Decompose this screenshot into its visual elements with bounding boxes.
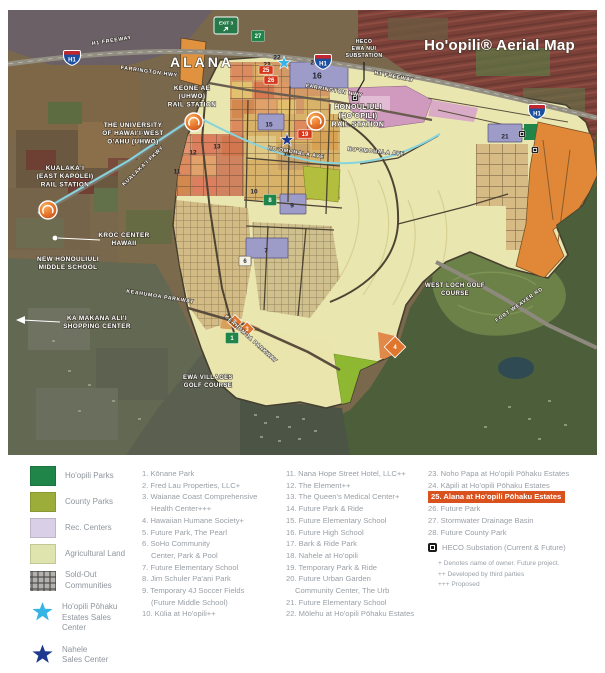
svg-text:NEW HONOULIULI: NEW HONOULIULI xyxy=(37,256,99,263)
legend-item-heco-substation: HECO Substation (Current & Future) xyxy=(428,542,602,554)
legend-item: 10. Kūlia at Ho'opili++ xyxy=(142,608,282,620)
svg-text:O'AHU (UHWO): O'AHU (UHWO) xyxy=(107,138,158,145)
legend-entry-label: Ho'opili Parks xyxy=(65,471,114,482)
hoopili-aerial-map-page: 27222324252616151913121118109821762314 H… xyxy=(0,0,605,673)
svg-text:H1: H1 xyxy=(319,62,327,68)
star-dark-icon xyxy=(32,645,53,665)
svg-text:19: 19 xyxy=(302,132,309,138)
legend-entry-label: Sold-OutCommunities xyxy=(65,570,112,591)
svg-text:RAIL STATION: RAIL STATION xyxy=(332,122,385,129)
legend-panel: Ho'opili ParksCounty ParksRec. CentersAg… xyxy=(0,458,605,673)
legend-item: 16. Future High School xyxy=(286,527,426,539)
svg-text:(HO'OPILI): (HO'OPILI) xyxy=(338,113,377,120)
legend-swatches: Ho'opili ParksCounty ParksRec. CentersAg… xyxy=(30,466,138,672)
parcel-marker-21: 21 xyxy=(501,133,509,140)
swatch-agricultural-land-icon xyxy=(30,544,56,564)
map-title: Ho'opili® Aerial Map xyxy=(424,37,575,54)
svg-text:12: 12 xyxy=(189,149,197,156)
svg-text:KROC CENTER: KROC CENTER xyxy=(98,232,149,239)
svg-text:(UHWO): (UHWO) xyxy=(179,93,206,100)
svg-text:15: 15 xyxy=(265,121,273,128)
parcel-marker-11: 11 xyxy=(174,168,181,175)
swatch-rec-centers-icon xyxy=(30,518,56,538)
parcel-marker-16: 16 xyxy=(312,70,322,80)
svg-text:RAIL STATION: RAIL STATION xyxy=(41,181,89,188)
legend-item: 14. Future Park & Ride xyxy=(286,503,426,515)
legend-item: 28. Future County Park xyxy=(428,527,602,539)
legend-item: Center, Park & Pool xyxy=(142,550,282,562)
legend-item: 22. Mōlehu at Ho'opili Pōhaku Estates xyxy=(286,608,426,620)
rail-station-icon xyxy=(185,113,203,131)
kroc-dot xyxy=(53,236,58,241)
legend-list-column-2: 11. Nana Hope Street Hotel, LLC++12. The… xyxy=(286,468,426,620)
svg-text:KUALAKA'I: KUALAKA'I xyxy=(46,165,85,172)
parcel-marker-27: 27 xyxy=(252,31,265,42)
legend-item: 26. Future Park xyxy=(428,503,602,515)
svg-text:COURSE: COURSE xyxy=(441,291,469,297)
svg-text:EWA VILLAGES: EWA VILLAGES xyxy=(183,375,233,381)
svg-text:H1: H1 xyxy=(533,112,541,118)
heco-substation-icon xyxy=(428,543,437,552)
exit-3-sign: EXIT 3 xyxy=(214,17,238,34)
legend-entry-star-dark: NaheleSales Center xyxy=(30,645,138,666)
parcel-marker-10: 10 xyxy=(250,188,258,195)
svg-text:SHOPPING CENTER: SHOPPING CENTER xyxy=(63,323,131,330)
legend-item: Community Center, The Urb xyxy=(286,585,426,597)
svg-text:13: 13 xyxy=(213,143,221,150)
legend-item: 9. Temporary 4J Soccer Fields xyxy=(142,585,282,597)
legend-item: 17. Bark & Ride Park xyxy=(286,538,426,550)
legend-entry-hoopili-parks: Ho'opili Parks xyxy=(30,466,138,486)
parcel-marker-1: 1 xyxy=(226,333,239,344)
svg-text:HAWAII: HAWAII xyxy=(111,240,136,247)
place-label: NEW HONOULIULIMIDDLE SCHOOL xyxy=(37,256,99,271)
legend-item: 27. Stormwater Drainage Basin xyxy=(428,515,602,527)
legend-entry-label: County Parks xyxy=(65,497,113,508)
legend-entry-agricultural-land: Agricultural Land xyxy=(30,544,138,564)
svg-text:GOLF COURSE: GOLF COURSE xyxy=(184,383,232,389)
legend-entry-rec-centers: Rec. Centers xyxy=(30,518,138,538)
swatch-hoopili-parks-icon xyxy=(30,466,56,486)
legend-notes: + Denotes name of owner. Future project.… xyxy=(428,559,602,591)
svg-text:26: 26 xyxy=(268,78,275,84)
aerial-map-canvas: 27222324252616151913121118109821762314 H… xyxy=(8,10,597,455)
place-label: KA MAKANA ALI'ISHOPPING CENTER xyxy=(63,315,131,330)
legend-list-column-1: 1. Kōnane Park2. Fred Lau Properties, LL… xyxy=(142,468,282,620)
svg-text:EWA NUI: EWA NUI xyxy=(352,46,377,52)
svg-text:EXIT 3: EXIT 3 xyxy=(219,21,233,26)
legend-item: 19. Temporary Park & Ride xyxy=(286,562,426,574)
svg-text:KEONE AE: KEONE AE xyxy=(174,85,211,92)
swatch-sold-out-icon xyxy=(30,571,56,591)
svg-text:(EAST KAPOLEI): (EAST KAPOLEI) xyxy=(36,173,93,180)
parcel-marker-15: 15 xyxy=(265,121,273,128)
heco-substation-map-icon xyxy=(519,131,526,137)
parcel-marker-22: 22 xyxy=(273,54,281,61)
parcel-marker-19: 19 xyxy=(298,130,312,138)
legend-entry-county-parks: County Parks xyxy=(30,492,138,512)
aerial-map: 27222324252616151913121118109821762314 H… xyxy=(8,10,597,455)
svg-text:HECO: HECO xyxy=(356,39,373,45)
legend-entry-label: Ho'opili PōhakuEstates SalesCenter xyxy=(62,602,117,634)
legend-entry-star-light: Ho'opili PōhakuEstates SalesCenter xyxy=(30,602,138,634)
legend-item: 13. The Queen's Medical Center+ xyxy=(286,491,426,503)
legend-item: 15. Future Elementary School xyxy=(286,515,426,527)
svg-text:16: 16 xyxy=(312,70,322,80)
svg-text:7: 7 xyxy=(264,247,268,254)
svg-text:SUBSTATION: SUBSTATION xyxy=(346,53,383,59)
legend-item: (Future Middle School) xyxy=(142,597,282,609)
svg-text:HONOULIULI: HONOULIULI xyxy=(334,104,382,111)
legend-item: Health Center+++ xyxy=(142,503,282,515)
legend-item: 24. Kāpili at Ho'opili Pōhaku Estates xyxy=(428,480,602,492)
place-label: HONOULIULI(HO'OPILI)RAIL STATION xyxy=(332,104,385,129)
legend-note: ++ Developed by third parties xyxy=(438,570,602,581)
parcel-marker-6: 6 xyxy=(239,256,251,266)
parcel-marker-25: 25 xyxy=(259,66,273,74)
legend-item: 21. Future Elementary School xyxy=(286,597,426,609)
parcel-marker-9: 9 xyxy=(290,202,294,209)
legend-item: 2. Fred Lau Properties, LLC+ xyxy=(142,480,282,492)
parcel-marker-13: 13 xyxy=(213,143,221,150)
svg-text:10: 10 xyxy=(250,188,258,195)
legend-item: 8. Jim Schuler Pa'ani Park xyxy=(142,573,282,585)
legend-item: 12. The Element++ xyxy=(286,480,426,492)
svg-text:H1: H1 xyxy=(68,58,76,64)
star-light-icon xyxy=(32,602,53,622)
svg-text:9: 9 xyxy=(290,202,294,209)
legend-list-column-3: 23. Noho Papa at Ho'opili Pōhaku Estates… xyxy=(428,468,602,591)
legend-item: 23. Noho Papa at Ho'opili Pōhaku Estates xyxy=(428,468,602,480)
legend-note: +++ Proposed xyxy=(438,580,602,591)
svg-text:OF HAWAI'I-WEST: OF HAWAI'I-WEST xyxy=(102,130,163,137)
svg-text:21: 21 xyxy=(501,133,509,140)
legend-note: + Denotes name of owner. Future project. xyxy=(438,559,602,570)
svg-text:WEST LOCH GOLF: WEST LOCH GOLF xyxy=(425,283,485,289)
svg-text:THE UNIVERSITY: THE UNIVERSITY xyxy=(104,122,163,129)
parcel-marker-7: 7 xyxy=(264,247,268,254)
svg-text:ALANA: ALANA xyxy=(170,54,234,70)
svg-text:22: 22 xyxy=(273,54,281,61)
parcel-marker-8: 8 xyxy=(264,195,277,206)
legend-item: 5. Future Park, The Pearl xyxy=(142,527,282,539)
legend-item: 1. Kōnane Park xyxy=(142,468,282,480)
svg-text:27: 27 xyxy=(255,34,262,40)
rail-station-icon xyxy=(39,201,57,219)
legend-entry-label: NaheleSales Center xyxy=(62,645,108,666)
svg-text:RAIL STATION: RAIL STATION xyxy=(168,101,216,108)
legend-item: 18. Nahele at Ho'opili xyxy=(286,550,426,562)
svg-text:MIDDLE SCHOOL: MIDDLE SCHOOL xyxy=(39,264,98,271)
legend-item-highlighted: 25. Alana at Ho'opili Pōhaku Estates xyxy=(428,491,602,503)
legend-item: 7. Future Elementary School xyxy=(142,562,282,574)
place-label: ALANA xyxy=(170,54,234,70)
rail-station-icon xyxy=(307,112,325,130)
svg-text:11: 11 xyxy=(174,168,181,175)
legend-item: 3. Waianae Coast Comprehensive xyxy=(142,491,282,503)
swatch-county-parks-icon xyxy=(30,492,56,512)
legend-entry-label: Rec. Centers xyxy=(65,523,112,534)
place-label: THE UNIVERSITYOF HAWAI'I-WESTO'AHU (UHWO… xyxy=(102,122,163,145)
heco-substation-map-icon xyxy=(532,147,539,153)
parcel-marker-12: 12 xyxy=(189,149,197,156)
svg-text:KA MAKANA ALI'I: KA MAKANA ALI'I xyxy=(67,315,127,322)
legend-item: 11. Nana Hope Street Hotel, LLC++ xyxy=(286,468,426,480)
legend-item: 6. SoHo Community xyxy=(142,538,282,550)
place-label: EWA VILLAGESGOLF COURSE xyxy=(183,375,233,389)
legend-entry-sold-out: Sold-OutCommunities xyxy=(30,570,138,591)
legend-entry-label: Agricultural Land xyxy=(65,549,125,560)
legend-item: 20. Future Urban Garden xyxy=(286,573,426,585)
legend-item: 4. Hawaiian Humane Society+ xyxy=(142,515,282,527)
svg-text:25: 25 xyxy=(263,68,270,74)
parcel-marker-26: 26 xyxy=(264,76,278,84)
